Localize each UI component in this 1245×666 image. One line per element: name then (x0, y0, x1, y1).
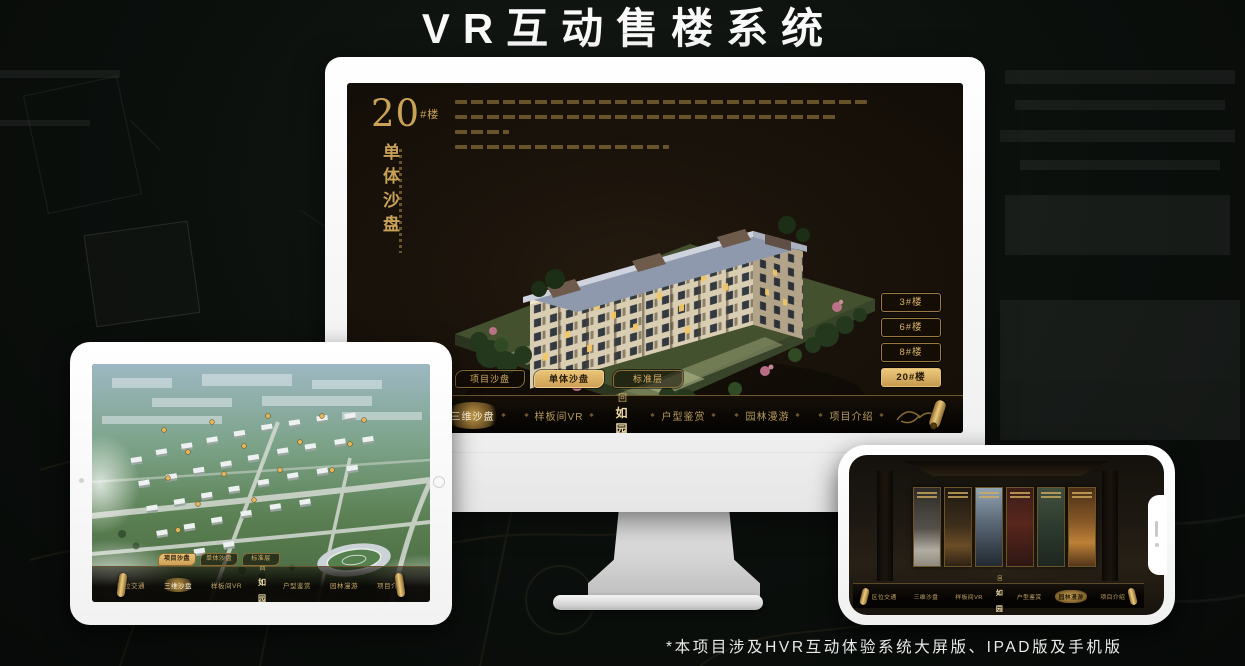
scroll-decoration-icon (893, 398, 949, 432)
nav-item-sandbox-3d[interactable]: 三维沙盘 (161, 578, 195, 592)
brand-logo-text: 如园 (615, 406, 629, 434)
floor-button-6[interactable]: 6#楼 (881, 318, 941, 337)
tab-project-sandbox[interactable]: 项目沙盘 (455, 370, 525, 388)
phone-camera-icon (1155, 543, 1159, 547)
poster-canvas: VR互动售楼系统 20#楼 单体沙盘 (0, 0, 1245, 666)
brand-logo: 回 如园 (615, 394, 629, 434)
panel-caption-decor (917, 492, 937, 500)
brand-logo: 回 如园 (258, 566, 267, 603)
tablet-nav-bar: 区位交通 三维沙盘 样板间VR 回 如园 户型鉴赏 园林漫游 项目介绍 (92, 566, 430, 602)
gallery-panel-6[interactable] (1068, 487, 1096, 567)
gallery-panel-3[interactable] (975, 487, 1003, 567)
paragraph-line (455, 115, 838, 119)
tablet-tab-single-building[interactable]: 单体沙盘 (200, 553, 238, 566)
panel-caption-decor (979, 492, 999, 500)
brand-logo-text: 如园 (996, 590, 1004, 613)
building-heading: 20#楼 (371, 95, 439, 133)
floor-button-8[interactable]: 8#楼 (881, 343, 941, 362)
nav-item-floorplans[interactable]: 户型鉴赏 (280, 578, 314, 592)
scroll-handle-icon (394, 573, 405, 598)
tablet-screen: 项目沙盘 单体沙盘 标准层 区位交通 三维沙盘 样板间VR 回 如园 户型鉴赏 … (92, 364, 430, 602)
nav-item-project-intro[interactable]: 项目介绍 (1096, 590, 1129, 603)
nav-item-floorplans[interactable]: 户型鉴赏 (653, 402, 713, 429)
brand-logo-seal-icon: 回 (615, 394, 629, 403)
floor-button-20[interactable]: 20#楼 (881, 368, 941, 387)
tablet-mockup: 项目沙盘 单体沙盘 标准层 区位交通 三维沙盘 样板间VR 回 如园 户型鉴赏 … (70, 342, 452, 625)
interior-beam-decor (904, 461, 1109, 476)
panel-caption-decor (1041, 492, 1061, 500)
phone-notch (1148, 495, 1167, 575)
nav-item-location[interactable]: 区位交通 (868, 590, 901, 603)
building-number-suffix: #楼 (420, 109, 439, 121)
scroll-handle-icon (116, 573, 127, 598)
floor-button-group: 3#楼 6#楼 8#楼 20#楼 (881, 293, 941, 387)
nav-item-model-room-vr[interactable]: 样板间VR (208, 578, 245, 592)
tab-standard-floor[interactable]: 标准层 (613, 370, 683, 388)
floor-button-3[interactable]: 3#楼 (881, 293, 941, 312)
nav-item-sandbox-3d[interactable]: 三维沙盘 (910, 590, 943, 603)
phone-nav-bar: 区位交通 三维沙盘 样板间VR 回 如园 户型鉴赏 园林漫游 项目介绍 (853, 583, 1144, 608)
gallery-panel-5[interactable] (1037, 487, 1065, 567)
panel-caption-decor (948, 492, 968, 500)
phone-screen: 区位交通 三维沙盘 样板间VR 回 如园 户型鉴赏 园林漫游 项目介绍 (849, 455, 1164, 615)
gallery-panel-2[interactable] (944, 487, 972, 567)
paragraph-line (455, 130, 509, 134)
scroll-handle-icon (1127, 587, 1138, 605)
nav-item-model-room-vr[interactable]: 样板间VR (951, 590, 986, 603)
phone-mockup: 区位交通 三维沙盘 样板间VR 回 如园 户型鉴赏 园林漫游 项目介绍 (838, 445, 1175, 625)
interior-pillar-decor (877, 471, 893, 581)
subtitle-english-decor (399, 149, 402, 253)
tablet-sandbox-tab-group: 项目沙盘 单体沙盘 标准层 (158, 553, 280, 566)
page-title: VR互动售楼系统 (0, 0, 1245, 58)
nav-item-floorplans[interactable]: 户型鉴赏 (1013, 590, 1046, 603)
gallery-panel-4[interactable] (1006, 487, 1034, 567)
footnote: *本项目涉及HVR互动体验系统大屏版、IPAD版及手机版 (666, 635, 1123, 657)
paragraph-line (455, 100, 867, 104)
tablet-tab-project-sandbox[interactable]: 项目沙盘 (158, 553, 196, 566)
sandbox-tab-group: 项目沙盘 单体沙盘 标准层 (455, 370, 683, 388)
tablet-tab-standard-floor[interactable]: 标准层 (242, 553, 280, 566)
panel-caption-decor (1010, 492, 1030, 500)
gallery-panel-1[interactable] (913, 487, 941, 567)
building-number: 20 (371, 92, 420, 135)
interior-pillar-decor (1102, 471, 1118, 581)
nav-item-garden-tour[interactable]: 园林漫游 (327, 578, 361, 592)
phone-speaker-icon (1155, 521, 1158, 537)
brand-logo-text: 如园 (258, 578, 267, 603)
brand-logo-seal-icon: 回 (258, 566, 267, 572)
monitor-stand-neck (588, 508, 760, 602)
nav-item-garden-tour[interactable]: 园林漫游 (737, 402, 797, 429)
nav-item-garden-tour[interactable]: 园林漫游 (1055, 590, 1088, 603)
brand-logo: 回 如园 (996, 577, 1004, 615)
brand-logo-seal-icon: 回 (996, 577, 1004, 582)
tab-single-building-sandbox[interactable]: 单体沙盘 (534, 370, 604, 388)
nav-item-project-intro[interactable]: 项目介绍 (821, 402, 881, 429)
tablet-home-button[interactable] (433, 476, 445, 488)
panel-caption-decor (1072, 492, 1092, 500)
monitor-stand-base (553, 595, 763, 610)
nav-item-model-room-vr[interactable]: 样板间VR (527, 402, 592, 429)
tablet-camera-icon (79, 478, 84, 483)
